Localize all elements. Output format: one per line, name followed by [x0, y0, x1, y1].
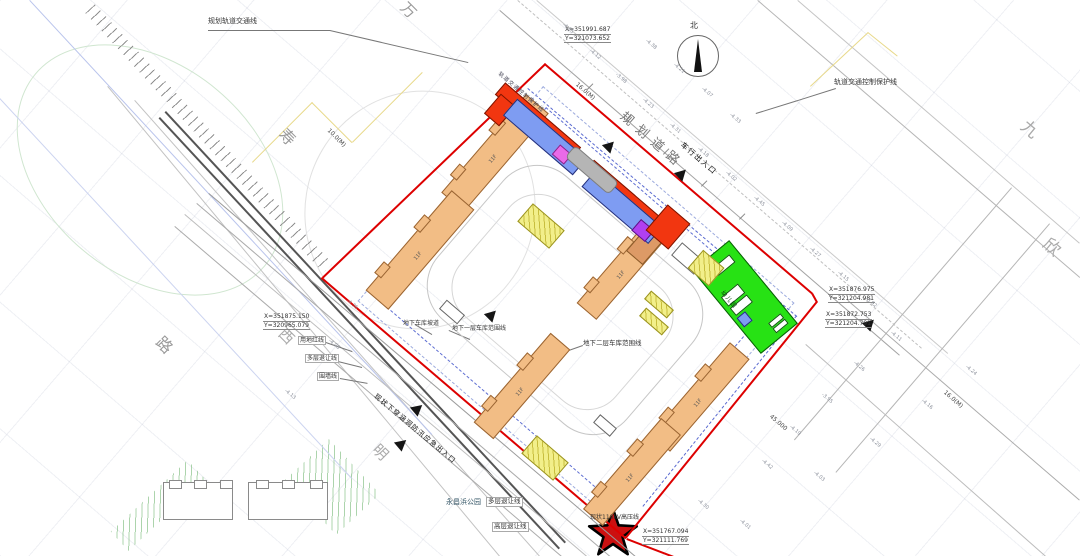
coordinate-value: X=351767.094 [642, 528, 689, 537]
high-setback-label: 高层退让线 [492, 522, 529, 532]
dim-label: 45.000 [768, 414, 788, 432]
coordinate-label: X=351872.753Y=321204.791 [825, 311, 872, 328]
road-line [797, 0, 1080, 244]
garage-ramp-label: 地下车库坡道 [403, 321, 439, 327]
coordinate-value: Y=321111.769 [642, 537, 689, 546]
coordinate-value: X=351876.975 [828, 286, 875, 295]
spot-elevation: -4.15 [836, 270, 850, 283]
spot-elevation: -4.07 [700, 86, 714, 99]
entrance-arrow-icon [394, 435, 410, 451]
spot-elevation: -4.01 [738, 518, 752, 531]
garage-b2-label: 地下二层车库范围线 [583, 340, 642, 347]
spot-elevation: -4.12 [588, 48, 602, 61]
garage-b1-label: 地下一层车库范围线 [452, 326, 506, 332]
spot-elevation: -4.24 [964, 364, 978, 377]
existing-building-bump [256, 480, 269, 489]
road-width-dim: 16.0(M) [942, 390, 964, 410]
spot-elevation: -4.42 [760, 458, 774, 471]
spot-elevation: -4.30 [696, 498, 710, 511]
spot-elevation: -4.27 [808, 246, 822, 259]
road-name-char: 万 [397, 0, 419, 22]
kindergarten-detail [737, 311, 753, 327]
spot-elevation: -4.33 [728, 112, 742, 125]
rail-protection-label: 轨道交通控制保护线 [834, 79, 897, 86]
spot-elevation: -4.19 [788, 424, 802, 437]
north-needle-icon [694, 39, 702, 72]
spot-elevation: -4.08 [327, 338, 341, 351]
road-name-char: 路 [152, 334, 175, 357]
spot-elevation: -4.13 [283, 388, 297, 401]
multi-setback-label-2: 多层退让线 [486, 497, 523, 507]
planned-rail-label: 规划轨道交通线 [208, 18, 257, 25]
road-line [798, 88, 836, 101]
spot-elevation: -4.09 [780, 220, 794, 233]
power-line-label: 现状110kV高压线 [590, 515, 639, 521]
spot-elevation: -3.92 [864, 296, 878, 309]
road-line [867, 32, 898, 57]
coordinate-value: X=351875.150 [263, 313, 310, 322]
site-red-line-label: 用地红线 [298, 336, 326, 345]
wall-line-label: 围墙线 [317, 372, 339, 381]
road-line [330, 30, 468, 63]
road-line [805, 344, 1046, 556]
road-line [847, 300, 1080, 501]
road-name-char: 九 [1017, 118, 1041, 143]
road-name-char: 欣 [1039, 236, 1063, 261]
road-name-char: 寿 [275, 126, 298, 149]
road-name-char: 明 [369, 442, 391, 464]
road-line [756, 100, 798, 114]
existing-building-bump [282, 480, 295, 489]
coordinate-value: X=351872.753 [825, 311, 872, 320]
north-label: 北 [690, 22, 698, 30]
site-plan-canvas: 北 规划道路万寿路西明九欣规划轨道交通线轨道交通控制保护线轨道交通控制保护线车行… [0, 0, 1080, 556]
road-line [208, 30, 330, 31]
spot-elevation: -4.16 [920, 398, 934, 411]
spot-elevation: -4.29 [868, 436, 882, 449]
road-line [835, 223, 1050, 473]
coordinate-label: X=351875.150Y=320965.079 [263, 313, 310, 330]
coordinate-value: Y=321073.652 [564, 35, 611, 44]
existing-building-bump [310, 480, 323, 489]
spot-elevation: -4.03 [812, 470, 826, 483]
existing-building-bump [169, 480, 182, 489]
coordinate-label: X=351767.094Y=321111.769 [642, 528, 689, 545]
coordinate-value: Y=321204.791 [825, 320, 872, 329]
existing-building-bump [194, 480, 207, 489]
multi-setback-label: 多层退让线 [305, 354, 339, 363]
coordinate-value: Y=320965.079 [263, 322, 310, 331]
park-label: 永昌浜公园 [446, 499, 481, 506]
spot-elevation: -3.98 [614, 72, 628, 85]
existing-building-bump [220, 480, 233, 489]
spot-elevation: -4.38 [644, 38, 658, 51]
